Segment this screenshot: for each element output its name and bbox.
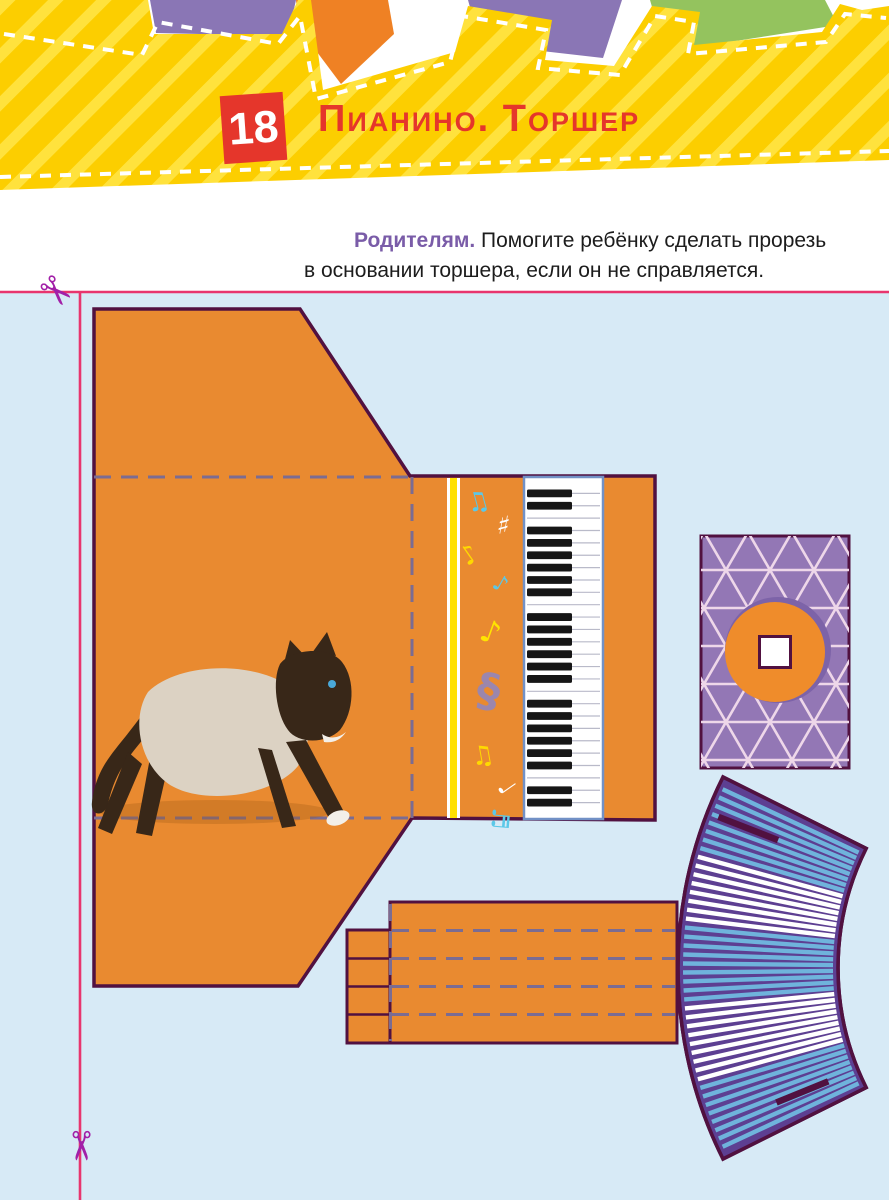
- parents-note-line2: в основании торшера, если он не справляе…: [304, 259, 764, 282]
- cat-shadow: [100, 800, 330, 824]
- header-banner: [0, 0, 889, 190]
- zigzag-purple-shape-left: [150, 0, 296, 36]
- craft-book-page: { "header": { "badge": "18", "title": "П…: [0, 0, 889, 1200]
- scissors-icon: ✂: [57, 1129, 103, 1163]
- parents-note-lead: Родителям.: [354, 229, 475, 252]
- pole-outline: [390, 902, 677, 1043]
- parents-note: Родителям. Помогите ребёнку сделать прор…: [304, 226, 824, 286]
- page-number-badge: 18: [220, 92, 288, 164]
- lampshade-template: [678, 777, 866, 1159]
- page-number: 18: [227, 100, 281, 155]
- cat-head: [276, 651, 352, 741]
- page-title: Пианино. Торшер: [318, 98, 640, 141]
- cat-eye: [328, 680, 336, 688]
- parents-note-line1: Помогите ребёнку сделать прорезь: [475, 229, 826, 252]
- piano-yellow-stripe: [450, 478, 457, 818]
- lamp-base-template: [701, 536, 849, 768]
- lamp-base-slot-square: [760, 637, 791, 668]
- page-canvas: ♫♯♪♪♪§♫♩♬: [0, 0, 889, 1200]
- lamp-pole-template: [347, 902, 677, 1043]
- music-note-glyph: ♬: [485, 807, 515, 831]
